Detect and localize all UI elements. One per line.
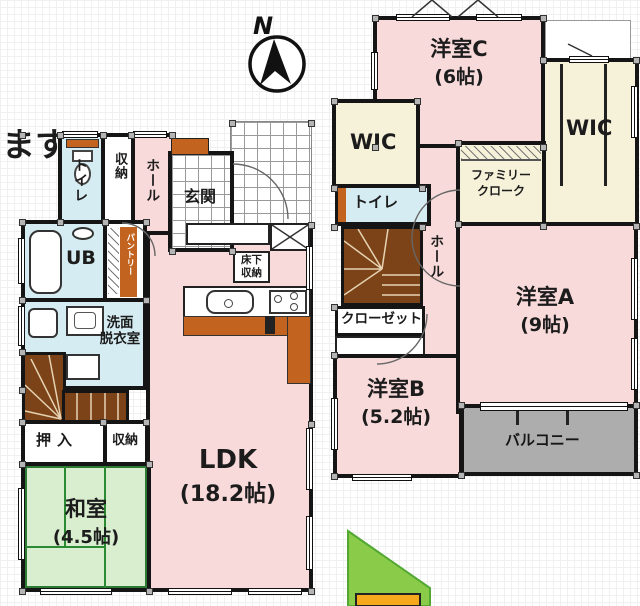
label-unit-bath: UB [66, 248, 96, 270]
wall-pillar-node [372, 144, 379, 151]
label-washroom: 洗面 脱衣室 [92, 316, 148, 347]
wall-pillar-node [19, 588, 26, 595]
label-room-a: 洋室A (9帖) [475, 284, 615, 339]
label-family-line2: クローク [477, 184, 525, 198]
label-washitsu: 和室 (4.5帖) [26, 496, 146, 551]
wall-pillar-node [19, 132, 26, 139]
label-oshiire: 押入 [36, 432, 78, 449]
wall-pillar-node [19, 297, 26, 304]
wall-pillar-node [331, 473, 338, 480]
label-toilet-1f: トイレ [72, 158, 88, 203]
wall-pillar-node [455, 140, 462, 147]
label-hall-2f: ホール [428, 234, 444, 279]
wall-pillar-node [102, 219, 109, 226]
wall-pillar-node [57, 132, 64, 139]
label-ldk-name: LDK [199, 445, 257, 475]
label-room-b-size: (5.2帖) [361, 406, 431, 428]
wall-pillar-node [146, 461, 153, 468]
label-room-c: 洋室C (6帖) [389, 36, 529, 91]
wall-pillar-node [419, 185, 426, 192]
wall-pillar-node [331, 304, 338, 311]
label-ldk: LDK (18.2帖) [158, 444, 298, 509]
wall-pillar-node [458, 402, 465, 409]
wall-pillar-node [540, 57, 547, 64]
wall-pillar-node [308, 222, 315, 229]
wall-pillar-node [633, 402, 640, 409]
label-hall-1f: ホール [144, 158, 160, 203]
wall-pillar-node [308, 588, 315, 595]
label-storage-top: 収納 [111, 152, 126, 180]
wall-pillar-node [19, 349, 26, 356]
wall-pillar-node [458, 472, 465, 479]
wall-pillar-node [540, 15, 547, 22]
label-storage-bottom: 収納 [112, 434, 138, 449]
label-washroom-line1: 洗面 [107, 315, 134, 331]
label-family-closet: ファミリー クローク [459, 168, 543, 199]
wall-pillar-node [633, 223, 640, 230]
wall-pillar-node [331, 352, 338, 359]
wall-pillar-node [169, 132, 176, 139]
label-underfloor-line2: 収納 [241, 267, 262, 279]
site-plot [340, 525, 440, 606]
wall-pillar-node [169, 248, 176, 255]
label-entrance: 玄関 [184, 188, 216, 206]
label-room-b: 洋室B (5.2帖) [336, 376, 456, 431]
wall-pillar-node [143, 419, 150, 426]
label-underfloor-storage: 床下 収納 [236, 254, 267, 280]
label-wic-right: WIC [566, 116, 612, 140]
label-ldk-size: (18.2帖) [180, 482, 276, 507]
label-balcony: バルコニー [505, 432, 580, 449]
wall-pillar-node [633, 472, 640, 479]
wall-pillar-node [419, 224, 426, 231]
wall-pillar-node [100, 419, 107, 426]
label-room-b-name: 洋室B [367, 377, 425, 401]
wall-pillar-node [372, 15, 379, 22]
label-washitsu-name: 和室 [65, 497, 107, 521]
wall-pillar-node [19, 219, 26, 226]
wall-pillar-node [143, 219, 150, 226]
wall-pillar-node [331, 98, 338, 105]
wall-pillar-node [633, 57, 640, 64]
label-toilet-2f: トイレ [353, 194, 398, 211]
label-closet-2f: クローゼット [341, 312, 422, 328]
wall-pillar-node [229, 248, 236, 255]
wall-pillar-node [19, 419, 26, 426]
label-family-line1: ファミリー [471, 168, 531, 182]
label-washitsu-size: (4.5帖) [53, 527, 119, 548]
wall-pillar-node [540, 223, 547, 230]
site-building [356, 594, 420, 606]
label-washroom-line2: 脱衣室 [100, 331, 141, 347]
wall-pillar-node [331, 224, 338, 231]
label-pantry: パントリー [124, 233, 134, 276]
wall-pillar-node [57, 219, 64, 226]
wall-pillar-node [128, 132, 135, 139]
wall-pillar-node [19, 387, 26, 394]
wall-pillar-node [146, 588, 153, 595]
wall-pillar-node [229, 120, 236, 127]
label-underfloor-line1: 床下 [241, 254, 262, 266]
label-room-a-size: (9帖) [520, 314, 570, 336]
wall-pillar-node [414, 98, 421, 105]
wall-pillar-node [100, 132, 107, 139]
wall-pillar-node [308, 120, 315, 127]
wall-pillar-node [143, 297, 150, 304]
label-room-c-size: (6帖) [434, 66, 484, 88]
wall-pillar-node [540, 144, 547, 151]
floorplan-canvas: ます) N [0, 0, 640, 606]
label-room-a-name: 洋室A [516, 285, 574, 309]
wall-pillar-node [19, 461, 26, 468]
wall-pillar-node [331, 185, 338, 192]
wall-pillar-node [455, 221, 462, 228]
wall-pillar-node [308, 421, 315, 428]
label-room-c-name: 洋室C [430, 37, 487, 61]
